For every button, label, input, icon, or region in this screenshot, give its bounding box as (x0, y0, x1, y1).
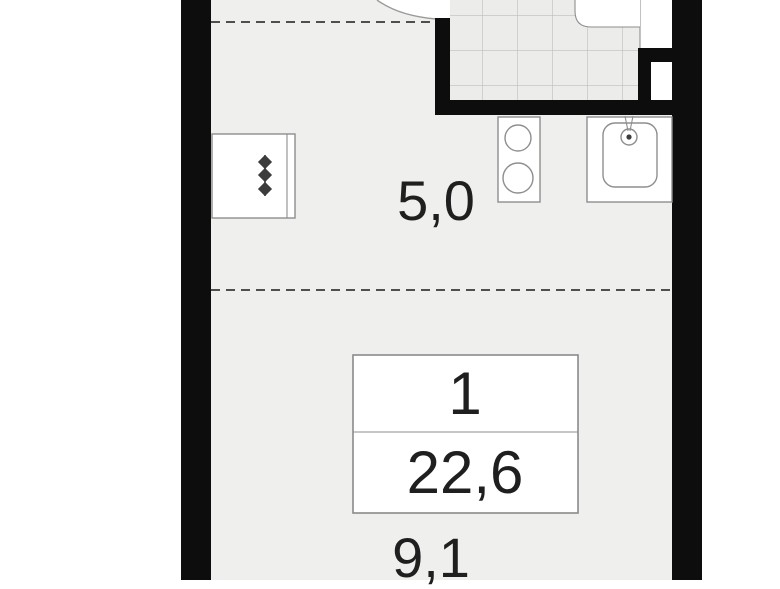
unit-area-label: 22,6 (407, 443, 524, 503)
stove (498, 117, 540, 202)
unit-number-label: 1 (448, 364, 481, 424)
bath-fixture (575, 0, 640, 27)
duct-niche (651, 62, 672, 100)
sink-basin (603, 123, 657, 187)
floor-plan: 1 22,6 5,0 9,1 (0, 0, 780, 580)
kitchen-area-label: 5,0 (397, 173, 475, 229)
room-area-label: 9,1 (392, 530, 470, 586)
kitchen-sink (587, 116, 672, 202)
duct-shaft (640, 0, 672, 48)
duct-left-wall (638, 48, 651, 100)
bathroom-bottom-wall (435, 100, 672, 115)
wardrobe-hinge-symbol (258, 155, 272, 196)
stove-burner-bottom (503, 163, 533, 193)
right-wall (672, 0, 702, 580)
left-wall (181, 0, 211, 580)
floor-plan-canvas (0, 0, 780, 580)
stove-burner-top (505, 125, 531, 151)
wardrobe (212, 134, 295, 218)
